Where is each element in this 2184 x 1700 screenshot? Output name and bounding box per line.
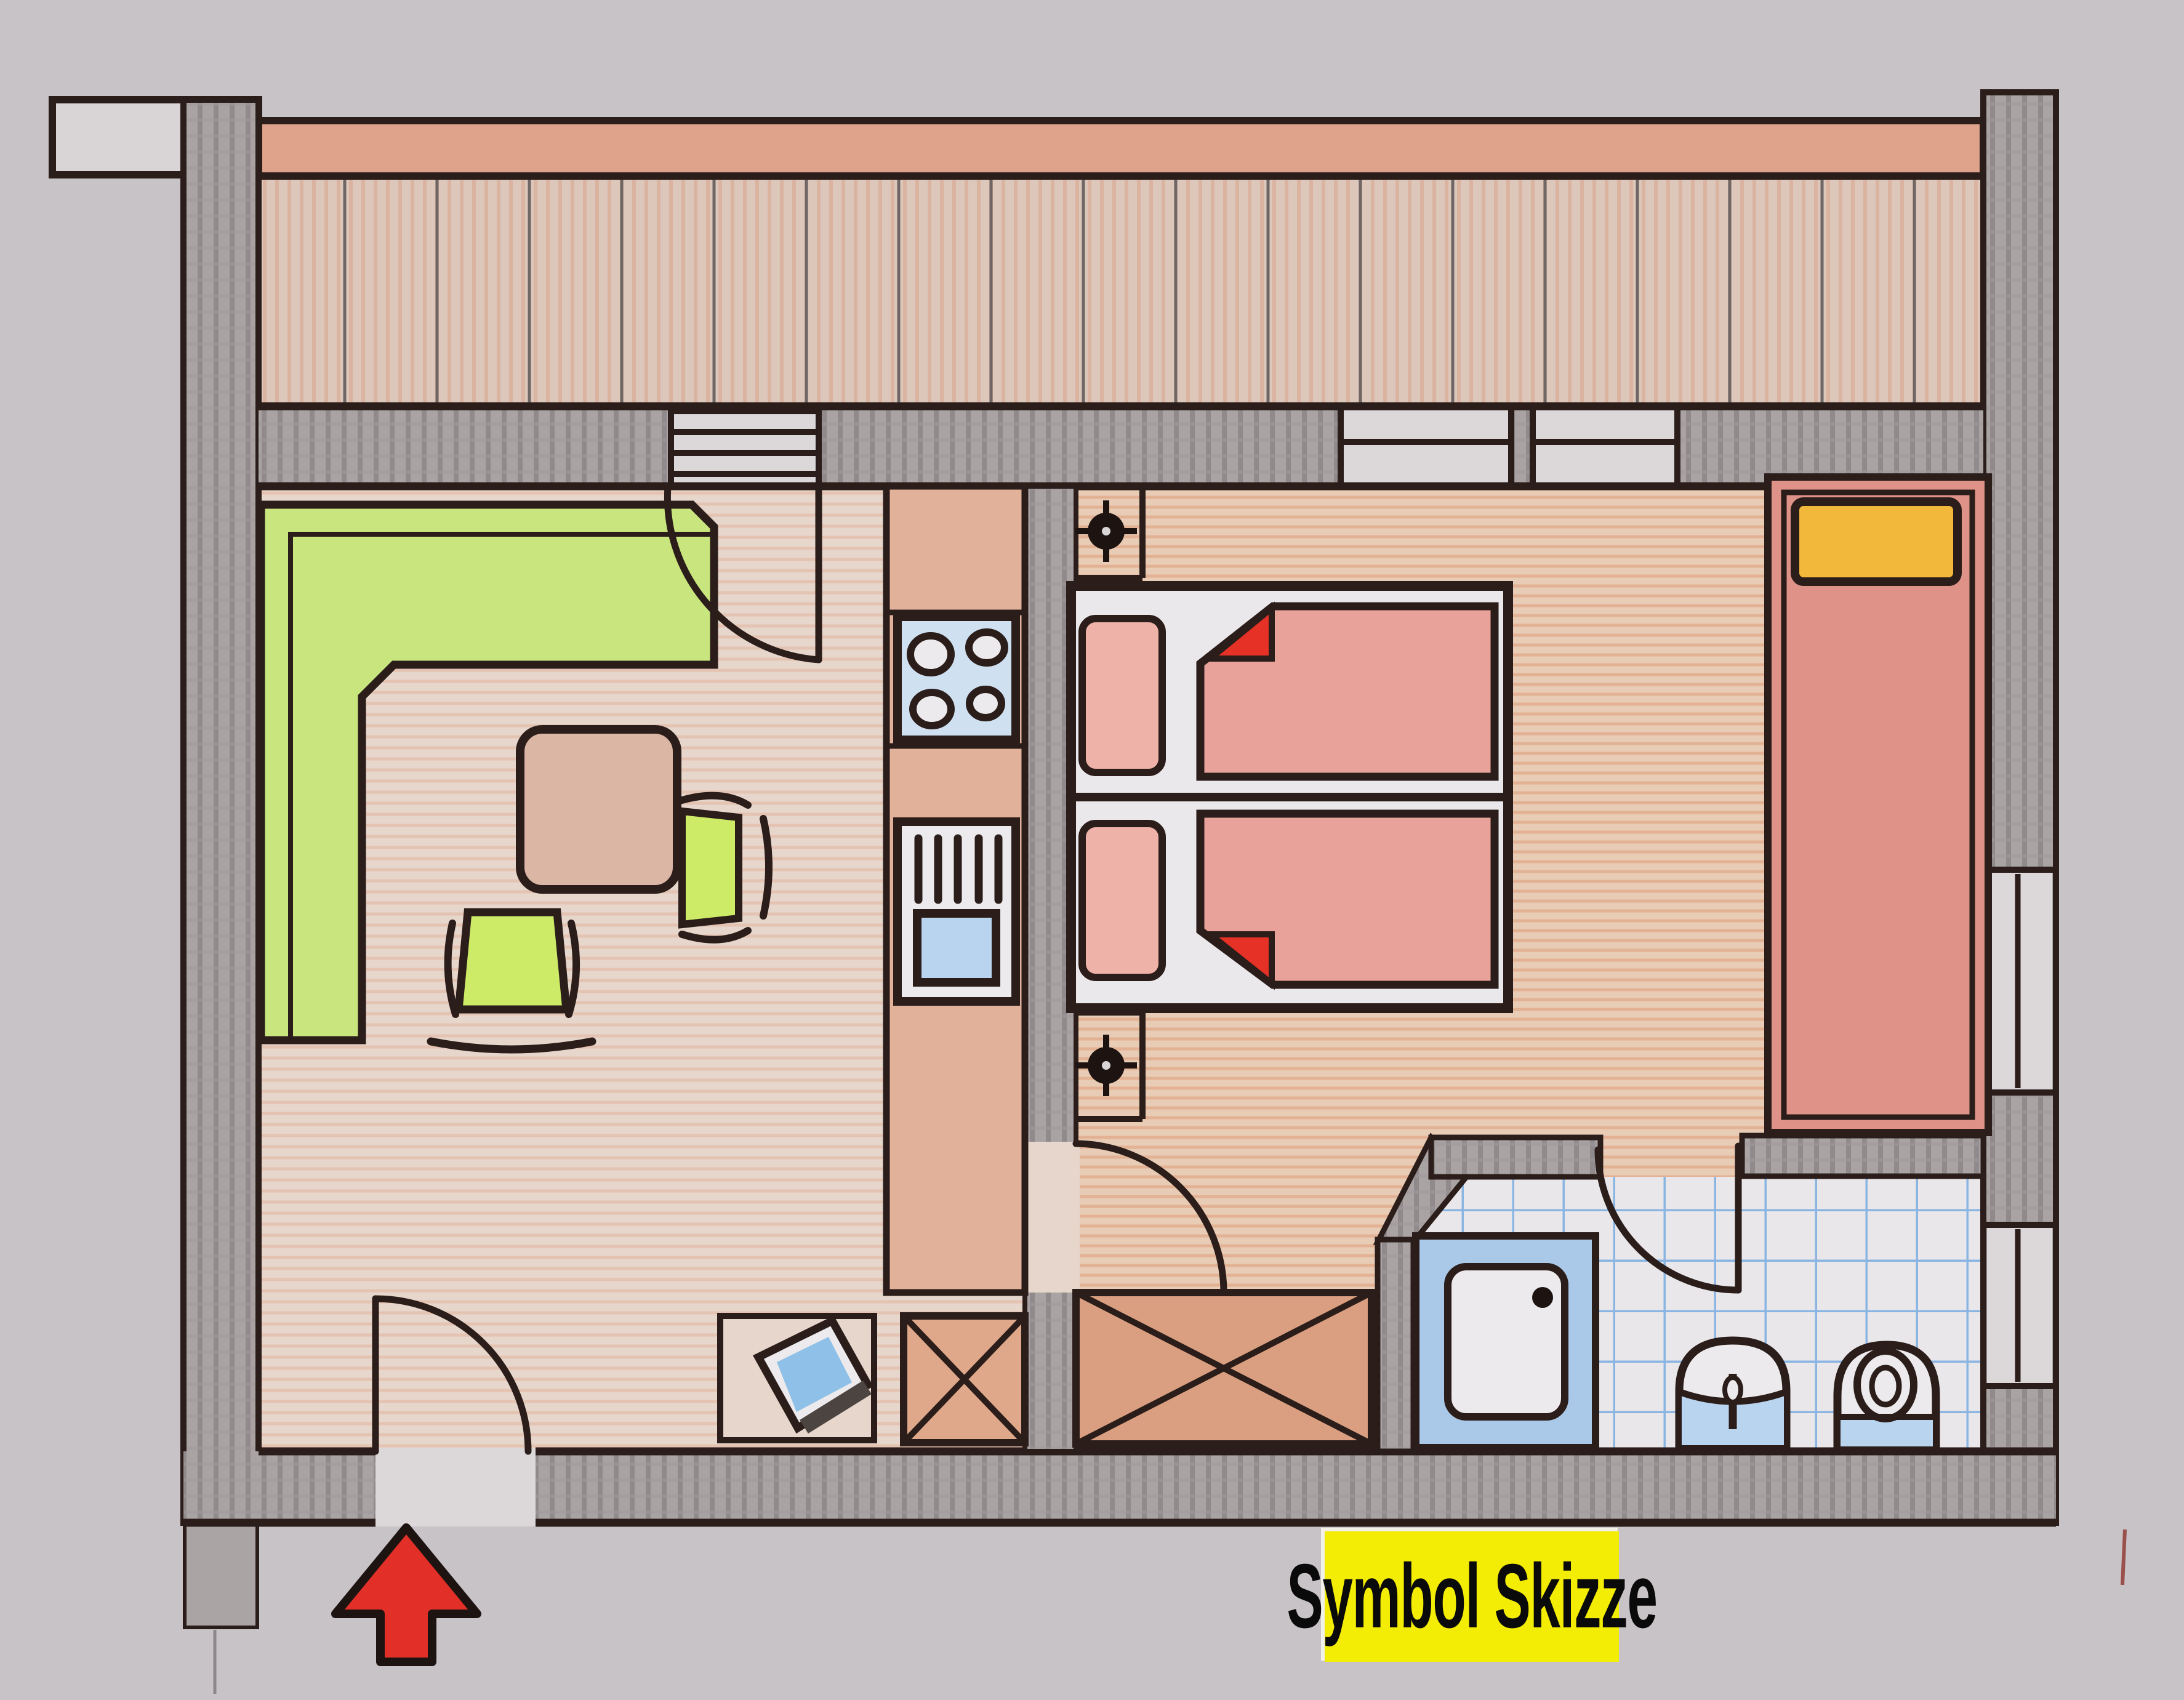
window-right-2: [1983, 1225, 2056, 1386]
sink-unit: [897, 822, 1016, 1001]
pillow-yellow: [1795, 502, 1957, 582]
window-top-2: [1533, 406, 1677, 486]
wall-top: [259, 406, 1983, 486]
burner-icon: [910, 636, 951, 673]
tv-set: [720, 1316, 874, 1440]
wall-left-stub-bottom: [185, 1523, 257, 1627]
balcony-railing: [240, 121, 1983, 176]
cooktop: [897, 617, 1016, 740]
shower: [1416, 1236, 1596, 1448]
kitchen-unit: [886, 486, 1025, 1293]
burner-icon: [969, 632, 1005, 663]
drain-icon: [1532, 1287, 1553, 1308]
wall-bathroom-left: [1378, 1240, 1413, 1451]
window-right-1: [1983, 870, 2056, 1093]
double-bed: [1071, 586, 1508, 1008]
burner-icon: [970, 689, 1002, 718]
toilet: [1837, 1345, 1936, 1448]
single-bed: [1768, 477, 1988, 1133]
pillow: [1082, 619, 1162, 772]
sink-basin: [917, 913, 996, 982]
washbasin: [1679, 1341, 1786, 1448]
burner-icon: [913, 692, 951, 726]
sketch-title-text: Symbol Skizze: [1287, 1544, 1656, 1649]
entrance-opening: [375, 1448, 536, 1526]
floorplan-drawing: [0, 0, 2184, 1700]
entrance-arrow-icon: [335, 1528, 477, 1662]
cabinet-x-narrow: [904, 1316, 1025, 1443]
wall-bathroom-top-right: [1742, 1136, 1983, 1176]
stray-pencil-mark: [2122, 1530, 2125, 1585]
dining-table: [520, 729, 677, 889]
balcony-door-opening: [671, 403, 819, 490]
pillow: [1082, 824, 1162, 977]
wall-left: [183, 100, 259, 1523]
wall-bathroom-top-left: [1431, 1137, 1600, 1177]
balcony: [240, 121, 1983, 406]
bedroom-door-opening: [1021, 1142, 1080, 1293]
cabinet-x-wide: [1076, 1293, 1371, 1444]
floorplan-sketch: Symbol Skizze: [0, 0, 2184, 1700]
window-top-1: [1341, 406, 1511, 486]
sketch-title-label: Symbol Skizze: [1325, 1531, 1619, 1662]
